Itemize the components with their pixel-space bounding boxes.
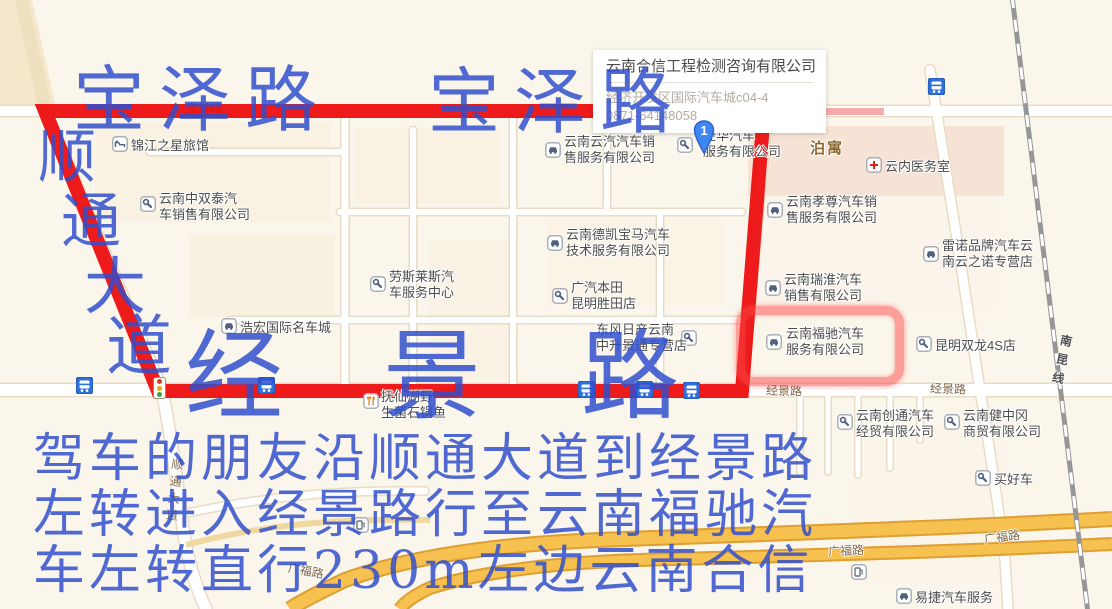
instruction-line-3: 车左转直行230m左边云南合信 <box>33 545 814 597</box>
car-icon[interactable] <box>923 246 939 262</box>
poi-label[interactable]: 云南中双泰汽车销售有限公司 <box>159 191 250 223</box>
instruction-line-1: 驾车的朋友沿顺通大道到经景路 <box>33 433 817 485</box>
poi-label[interactable]: 云内医务室 <box>885 159 950 175</box>
wrench-icon[interactable] <box>837 414 853 430</box>
poi-label[interactable]: 易捷汽车服务 <box>915 590 993 606</box>
poi-label[interactable]: 劳斯莱斯汽车服务中心 <box>389 269 454 301</box>
poi-label[interactable]: 云南福驰汽车服务有限公司 <box>786 326 864 358</box>
poi-label[interactable]: 雷诺品牌汽车云南云之诺专营店 <box>942 238 1033 270</box>
poi-label[interactable]: 云南瑞淮汽车销售有限公司 <box>784 272 862 304</box>
wrench-icon[interactable] <box>916 336 932 352</box>
instruction-line-2: 左转进入经景路行至云南福驰汽 <box>33 489 817 541</box>
car-icon[interactable] <box>896 588 912 604</box>
car-icon[interactable] <box>767 202 783 218</box>
map-pin-marker[interactable]: 1 <box>692 120 716 156</box>
wrench-icon[interactable] <box>975 470 991 486</box>
annotation-jingjing-road: 经景路 <box>185 328 779 426</box>
car-icon[interactable] <box>765 280 781 296</box>
car-icon[interactable] <box>547 235 563 251</box>
poi-label[interactable]: 昆明双龙4S店 <box>935 338 1016 354</box>
annotation-baoze-road-1: 宝泽路 <box>73 64 331 136</box>
map-canvas[interactable]: 宝泽路经景路经景路广福路广福路广福路南昆线顺通大道 锦江之星旅馆云南中双泰汽车销… <box>0 0 1112 609</box>
bus-stop-icon[interactable] <box>76 377 93 394</box>
poi-label[interactable]: 买好车 <box>994 472 1033 488</box>
wrench-icon[interactable] <box>140 196 156 212</box>
car-icon[interactable] <box>545 142 561 158</box>
wrench-icon[interactable] <box>944 414 960 430</box>
wrench-icon[interactable] <box>370 276 386 292</box>
poi-label[interactable]: 云南孝尊汽车销售服务有限公司 <box>786 194 877 226</box>
annotation-baoze-road-2: 宝泽路 <box>428 66 686 138</box>
poi-label[interactable]: 云南德凯宝马汽车技术服务有限公司 <box>566 227 670 259</box>
wrench-icon[interactable] <box>552 288 568 304</box>
cross-icon[interactable] <box>866 157 882 173</box>
annotation-shuntong-char: 道 <box>106 314 172 380</box>
bus-stop-icon[interactable] <box>928 78 945 95</box>
annotation-shuntong-char: 顺 <box>38 128 96 186</box>
pin-number: 1 <box>700 123 707 138</box>
gas-station-icon[interactable] <box>851 564 867 580</box>
annotation-shuntong-char: 通 <box>61 192 121 252</box>
poi-label[interactable]: 云南创通汽车经贸有限公司 <box>856 408 934 440</box>
poi-label[interactable]: 广汽本田昆明胜田店 <box>571 280 636 312</box>
poi-label[interactable]: 泊寓 <box>810 141 844 157</box>
poi-label[interactable]: 云南健中冈商贸有限公司 <box>963 408 1041 440</box>
